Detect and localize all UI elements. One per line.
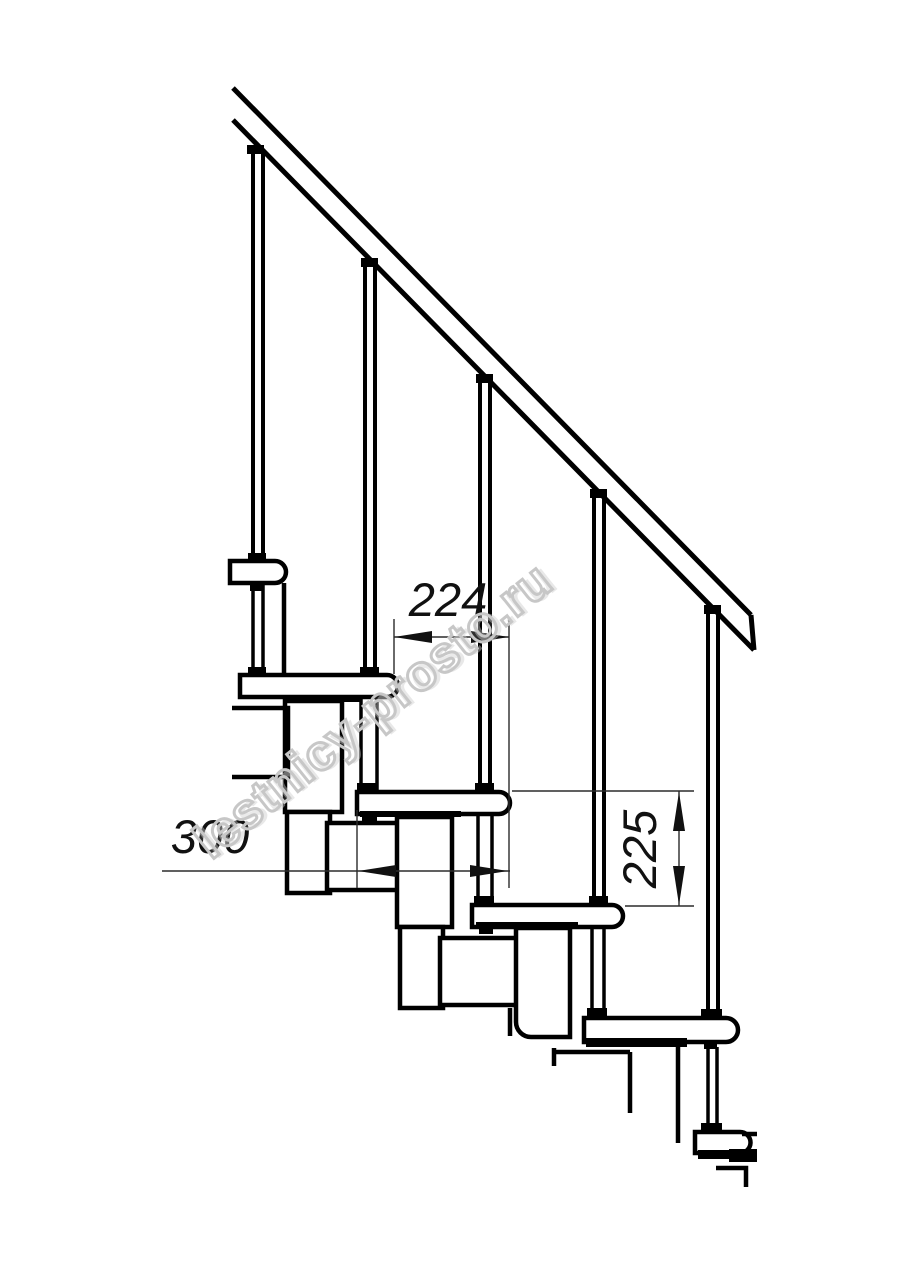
handrail: [233, 88, 754, 650]
baluster-5-nub-below-tread-4: [704, 1042, 717, 1049]
rod-3-foot: [474, 896, 494, 905]
baluster-1-foot: [248, 667, 266, 676]
baluster-1-nub-below-upper-tread: [250, 583, 263, 591]
baluster-2-foot: [360, 667, 379, 676]
module-box-wide-1: [327, 823, 403, 890]
baluster-4-foot: [589, 896, 608, 905]
dimension-225-arrow-down: [673, 866, 685, 905]
clamp-under-tread-3: [476, 922, 578, 929]
clamp-under-tread-5-bar: [729, 1149, 757, 1162]
clamp-under-tread-1: [284, 695, 360, 702]
module-box-tall-2: [397, 817, 452, 927]
module-box-tall-3: [516, 928, 570, 1037]
baluster-3-foot: [475, 783, 494, 792]
tread-1: [240, 675, 398, 697]
handrail-bottom-edge: [233, 120, 754, 650]
clamp-under-tread-2: [360, 811, 461, 817]
baluster-4: [592, 498, 604, 1018]
clamp-under-tread-4: [586, 1038, 687, 1047]
baluster-5: [708, 614, 718, 1127]
baluster-2: [361, 267, 377, 792]
baluster-1: [253, 153, 263, 670]
dimension-225-label: 225: [613, 809, 666, 889]
dimension-224-arrow-left: [394, 631, 432, 643]
module-box-wide-2: [440, 938, 517, 1005]
handrail-end-cap: [751, 615, 754, 650]
tread-upper-partial: [230, 561, 286, 583]
module-box-tall-1: [285, 701, 342, 812]
staircase-technical-drawing: 224 300 225 lestnicy-prosto.ru: [0, 0, 914, 1280]
rod-2-foot: [357, 783, 377, 792]
dimension-300-label: 300: [171, 810, 249, 863]
rod-4-foot: [587, 1008, 607, 1018]
dimension-224-label: 224: [408, 573, 487, 626]
clamp-under-tread-3-nub: [479, 929, 493, 934]
baluster-3: [478, 383, 492, 906]
tread-2: [357, 792, 510, 814]
step-edge-below-tread-5: [716, 1168, 746, 1187]
baluster-1-flange-upper-tread: [248, 553, 266, 561]
module-box-low-1: [287, 812, 330, 893]
dimension-225-arrow-up: [673, 792, 685, 831]
module-box-low-2: [400, 927, 443, 1008]
baluster-5-flange-tread-4: [701, 1009, 722, 1018]
baluster-5-foot: [701, 1123, 722, 1132]
dimension-300-arrow-right: [470, 865, 508, 877]
clamp-under-tread-2-nub: [362, 817, 377, 822]
upper-module-open-box: [232, 708, 288, 777]
staircase-drawing-svg: 224 300 225: [0, 0, 914, 1280]
